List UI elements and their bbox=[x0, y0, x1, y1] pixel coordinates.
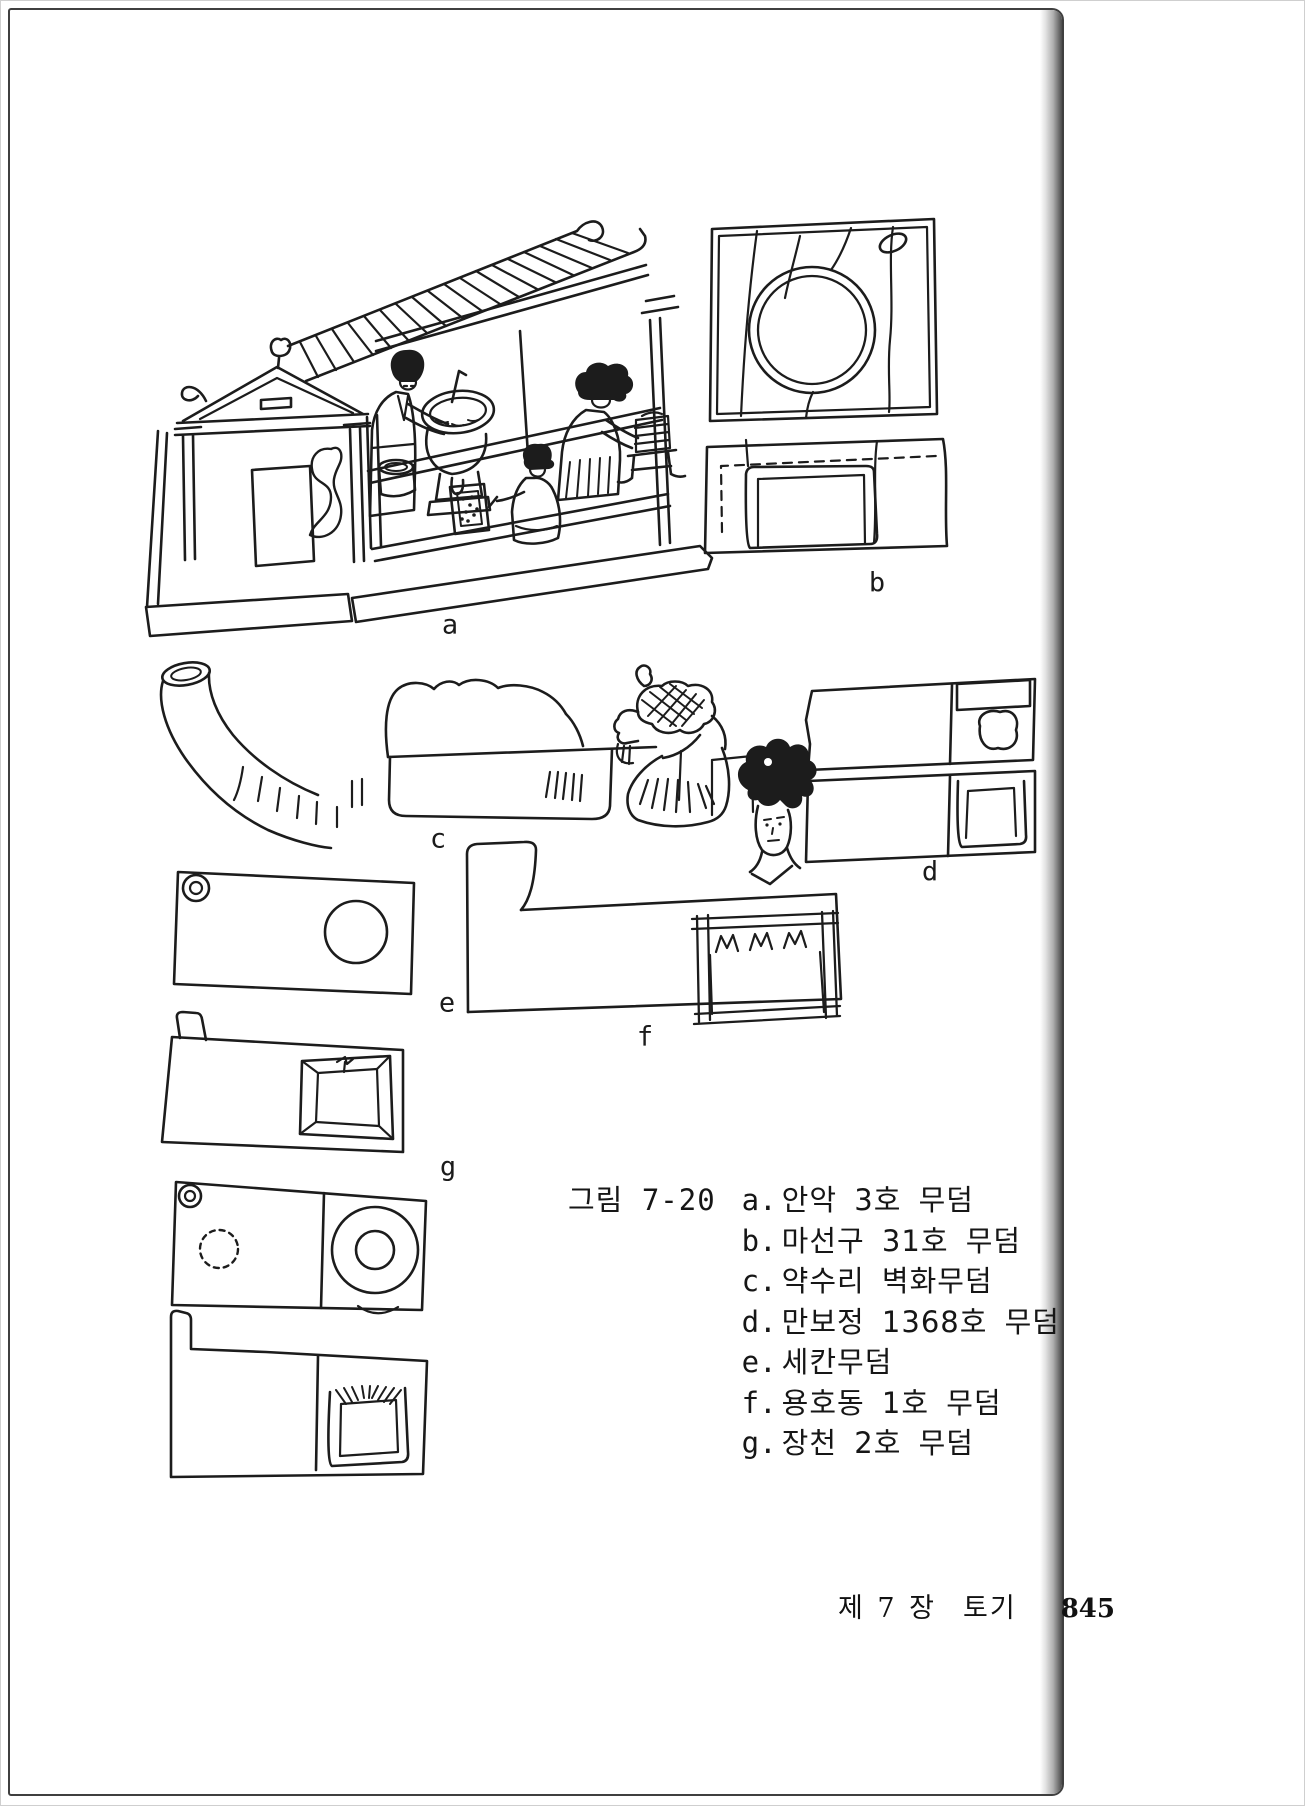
caption-entry-key: c. bbox=[742, 1261, 782, 1302]
drawing-c-yaksuri-mural-tomb bbox=[160, 659, 753, 848]
drawing-d-manbojeong-tomb-1368 bbox=[806, 679, 1035, 862]
caption-entry: b.마선구 31호 무덤 bbox=[742, 1221, 1060, 1262]
drawing-b-maseongu-tomb-31 bbox=[705, 219, 947, 553]
caption-entry: e.세칸무덤 bbox=[742, 1342, 1060, 1383]
caption-entry-key: e. bbox=[742, 1342, 782, 1383]
figure-caption: 그림 7-20 a.안악 3호 무덤 b.마선구 31호 무덤 c.약수리 벽화… bbox=[568, 1180, 1060, 1464]
drawing-label-g: g bbox=[440, 1152, 456, 1183]
drawing-g-jangcheon-tomb-2 bbox=[171, 1182, 427, 1477]
page-footer: 제 7 장 토기 845 bbox=[838, 1586, 1115, 1625]
caption-entry: a.안악 3호 무덤 bbox=[742, 1180, 1060, 1221]
scanned-book-page: a b c d e f g 그림 7-20 a.안악 3호 무덤 b.마선구 3… bbox=[0, 0, 1305, 1806]
footer-section: 토기 bbox=[963, 1586, 1017, 1625]
caption-entry-key: f. bbox=[742, 1383, 782, 1424]
caption-entry-text: 장천 2호 무덤 bbox=[782, 1426, 974, 1460]
caption-entry-key: a. bbox=[742, 1180, 782, 1221]
caption-entry: f.용호동 1호 무덤 bbox=[742, 1383, 1060, 1424]
figure-illustrations bbox=[0, 0, 1305, 1806]
drawing-label-d: d bbox=[922, 857, 938, 888]
footer-chapter: 제 7 장 bbox=[838, 1586, 937, 1625]
drawing-f-yonghodong-tomb-1 bbox=[467, 842, 841, 1024]
caption-entry-key: b. bbox=[742, 1221, 782, 1262]
caption-entry-text: 세칸무덤 bbox=[782, 1345, 893, 1379]
drawing-label-b: b bbox=[869, 568, 885, 599]
drawing-a-anak-tomb-3 bbox=[146, 221, 712, 636]
caption-entry-text: 마선구 31호 무덤 bbox=[782, 1224, 1021, 1258]
caption-entry: d.만보정 1368호 무덤 bbox=[742, 1302, 1060, 1343]
drawing-label-a: a bbox=[442, 610, 458, 641]
drawing-e-sekan-tomb bbox=[162, 872, 414, 1152]
drawing-label-e: e bbox=[439, 988, 455, 1019]
caption-entry-text: 약수리 벽화무덤 bbox=[782, 1264, 993, 1298]
caption-figure-number: 그림 7-20 bbox=[568, 1180, 716, 1221]
caption-entry: g.장천 2호 무덤 bbox=[742, 1423, 1060, 1464]
caption-entry-text: 만보정 1368호 무덤 bbox=[782, 1305, 1060, 1339]
drawing-label-c: c bbox=[430, 824, 446, 855]
caption-entry: c.약수리 벽화무덤 bbox=[742, 1261, 1060, 1302]
caption-entry-text: 용호동 1호 무덤 bbox=[782, 1386, 1002, 1420]
caption-entries: a.안악 3호 무덤 b.마선구 31호 무덤 c.약수리 벽화무덤 d.만보정… bbox=[742, 1180, 1060, 1464]
caption-entry-key: g. bbox=[742, 1423, 782, 1464]
footer-page-number: 845 bbox=[1061, 1594, 1115, 1624]
drawing-label-f: f bbox=[637, 1022, 653, 1053]
caption-entry-text: 안악 3호 무덤 bbox=[782, 1183, 974, 1217]
caption-entry-key: d. bbox=[742, 1302, 782, 1343]
